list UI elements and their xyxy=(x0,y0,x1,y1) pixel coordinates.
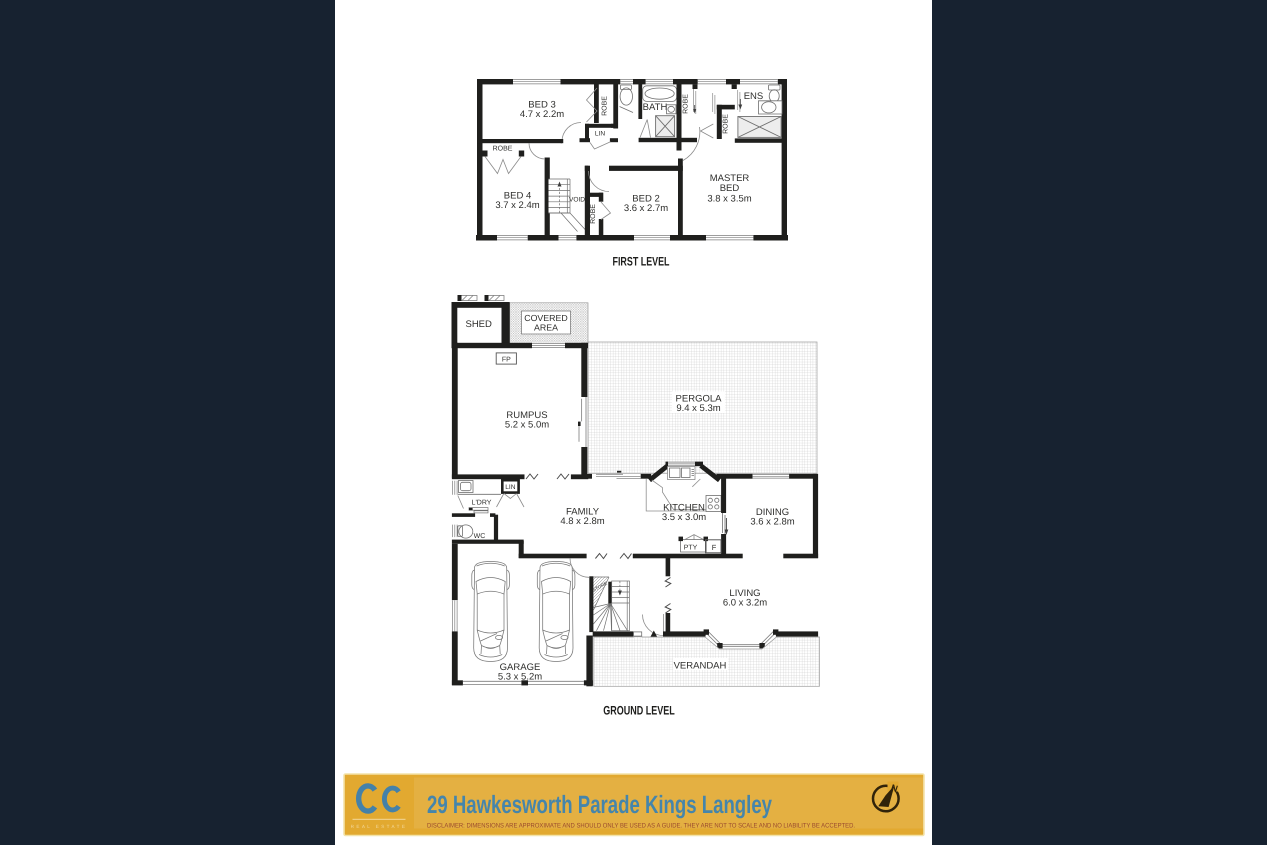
svg-text:LIN: LIN xyxy=(505,484,515,491)
svg-text:ENS: ENS xyxy=(744,91,764,102)
svg-text:BED: BED xyxy=(720,183,740,194)
svg-text:VOID: VOID xyxy=(569,197,585,204)
svg-text:3.7 x 2.4m: 3.7 x 2.4m xyxy=(495,200,539,211)
svg-text:REAL ESTATE: REAL ESTATE xyxy=(351,824,408,829)
svg-text:4.7 x 2.2m: 4.7 x 2.2m xyxy=(520,109,564,120)
svg-text:ROBE: ROBE xyxy=(493,146,513,153)
svg-text:DISCLAIMER: DIMENSIONS ARE APP: DISCLAIMER: DIMENSIONS ARE APPROXIMATE A… xyxy=(427,823,855,830)
svg-text:4.8 x 2.8m: 4.8 x 2.8m xyxy=(560,516,604,527)
svg-text:F: F xyxy=(712,543,717,552)
svg-text:ROBE: ROBE xyxy=(683,94,690,114)
svg-text:3.6 x 2.8m: 3.6 x 2.8m xyxy=(750,517,794,528)
svg-text:3.8 x 3.5m: 3.8 x 3.5m xyxy=(707,194,751,205)
svg-text:ROBE: ROBE xyxy=(590,204,597,224)
svg-text:5.3 x 5.2m: 5.3 x 5.2m xyxy=(498,671,542,682)
svg-text:L'DRY: L'DRY xyxy=(472,500,492,507)
svg-text:3.5 x 3.0m: 3.5 x 3.0m xyxy=(662,512,706,523)
svg-text:29 Hawkesworth Parade Kings La: 29 Hawkesworth Parade Kings Langley xyxy=(427,791,772,819)
svg-text:9.4 x 5.3m: 9.4 x 5.3m xyxy=(676,403,720,414)
svg-text:FIRST LEVEL: FIRST LEVEL xyxy=(613,255,670,269)
svg-text:ROBE: ROBE xyxy=(602,96,609,116)
svg-text:PTY: PTY xyxy=(684,545,698,552)
svg-text:ROBE: ROBE xyxy=(722,114,729,134)
svg-text:3.6 x 2.7m: 3.6 x 2.7m xyxy=(624,203,668,214)
svg-text:GROUND LEVEL: GROUND LEVEL xyxy=(603,704,675,718)
svg-text:VERANDAH: VERANDAH xyxy=(674,660,727,671)
svg-text:AREA: AREA xyxy=(534,322,558,332)
svg-text:FP: FP xyxy=(502,356,511,363)
svg-text:LIN: LIN xyxy=(595,131,605,138)
svg-text:SHED: SHED xyxy=(465,319,492,330)
svg-text:MASTER: MASTER xyxy=(710,173,750,184)
svg-text:WC: WC xyxy=(474,533,486,540)
svg-text:BATH: BATH xyxy=(643,102,668,113)
svg-text:6.0 x 3.2m: 6.0 x 3.2m xyxy=(723,598,767,609)
svg-text:5.2 x 5.0m: 5.2 x 5.0m xyxy=(505,420,549,431)
